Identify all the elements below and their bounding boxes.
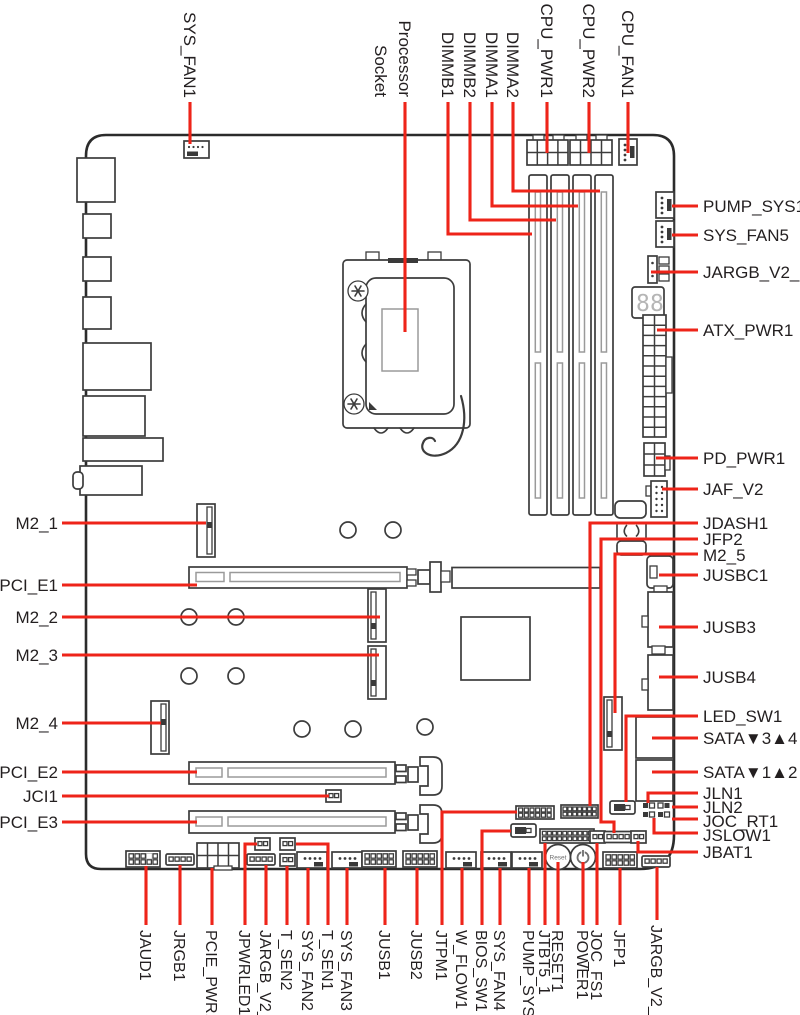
connector-cpu-pwr2 xyxy=(570,135,612,165)
label-bios-sw1: BIOS_SW1 xyxy=(472,930,489,1012)
header-t-sen1 xyxy=(280,838,295,850)
header-jtpm1 xyxy=(516,806,554,819)
label-m2-1: M2_1 xyxy=(15,514,58,533)
connector-sys-fan5 xyxy=(656,221,674,247)
labels-top: SYS_FAN1 Processor Socket DIMMB1 DIMMB2 … xyxy=(180,4,637,98)
header-jrgb1 xyxy=(166,854,194,865)
connector-sys-fan2 xyxy=(297,852,327,868)
label-dimma2: DIMMA2 xyxy=(503,32,522,98)
label-dimmb1: DIMMB1 xyxy=(438,32,457,98)
reset-button-label: Reset xyxy=(550,855,567,862)
label-jpwrled1: JPWRLED1 xyxy=(235,930,252,1015)
label-sys-fan2: SYS_FAN2 xyxy=(298,930,315,1011)
motherboard-diagram-page: 8 8 xyxy=(0,0,800,1015)
label-jaf-v2: JAF_V2 xyxy=(703,480,763,499)
debug-digit-1: 8 xyxy=(636,291,650,317)
label-pd-pwr1: PD_PWR1 xyxy=(703,449,785,468)
label-reset1: RESET1 xyxy=(548,930,565,992)
label-sata-1-2: SATA▼1▲2 xyxy=(703,763,797,782)
label-jusb4: JUSB4 xyxy=(703,668,756,687)
connector-sys-fan3 xyxy=(332,852,362,868)
label-jargb-v2-2: JARGB_V2_2 xyxy=(647,925,664,1015)
debug-led-display: 8 8 xyxy=(632,287,664,318)
header-jusb1 xyxy=(362,851,396,867)
header-jargb-v2-2 xyxy=(642,856,670,867)
audio-jack-bump xyxy=(73,472,83,489)
label-jbat1: JBAT1 xyxy=(703,843,753,862)
connector-pcie-pwr1 xyxy=(197,843,239,870)
dimm-slot-dimma1 xyxy=(573,175,591,515)
label-pcie-pwr1: PCIE_PWR1 xyxy=(202,930,219,1015)
connector-jargb-v2-3 xyxy=(648,256,669,283)
header-jargb-v2-1 xyxy=(247,854,275,865)
connector-jusbc1 xyxy=(647,556,673,588)
header-jfp1 xyxy=(603,852,637,868)
motherboard-diagram: 8 8 xyxy=(0,0,800,1015)
label-jargb-v2-3: JARGB_V2_3 xyxy=(703,263,800,282)
label-sys-fan3: SYS_FAN3 xyxy=(337,930,354,1011)
switch-bios-sw1 xyxy=(511,824,536,837)
label-jusb1: JUSB1 xyxy=(375,930,392,980)
switch-led-sw1 xyxy=(610,801,635,814)
small-tab-2 xyxy=(652,646,665,654)
label-socket: Socket xyxy=(371,45,390,97)
label-jtpm1: JTPM1 xyxy=(432,930,449,981)
chipset xyxy=(461,617,530,680)
label-cpu-fan1: CPU_FAN1 xyxy=(618,10,637,98)
label-atx-pwr1: ATX_PWR1 xyxy=(703,321,793,340)
label-jusb3: JUSB3 xyxy=(703,618,756,637)
label-m2-4: M2_4 xyxy=(15,714,58,733)
connector-sys-fan4 xyxy=(481,852,511,868)
slot-m2-4 xyxy=(151,701,169,754)
label-m2-5: M2_5 xyxy=(703,546,746,565)
dimm-slot-dimma2 xyxy=(595,175,613,515)
header-t-sen2 xyxy=(280,854,295,866)
label-pump-sys1: PUMP_SYS1 xyxy=(703,197,800,216)
dimm-slot-dimmb2 xyxy=(551,175,569,515)
label-processor: Processor xyxy=(395,20,414,97)
labels-left: M2_1 PCI_E1 M2_2 M2_3 M2_4 PCI_E2 JCI1 P… xyxy=(0,514,58,832)
component-below-dimm xyxy=(615,501,646,518)
connector-w-flow1 xyxy=(446,852,476,868)
label-dimmb2: DIMMB2 xyxy=(460,32,479,98)
label-jargb-v2-1: JARGB_V2_1 xyxy=(256,930,273,1015)
label-jrgb1: JRGB1 xyxy=(170,930,187,982)
labels-right: PUMP_SYS1 SYS_FAN5 JARGB_V2_3 ATX_PWR1 P… xyxy=(703,197,800,862)
label-pci-e3: PCI_E3 xyxy=(0,813,58,832)
label-jaud1: JAUD1 xyxy=(136,930,153,981)
label-m2-2: M2_2 xyxy=(15,608,58,627)
header-jtbt5-1 xyxy=(540,829,594,843)
label-pci-e2: PCI_E2 xyxy=(0,763,58,782)
label-cpu-pwr2: CPU_PWR2 xyxy=(579,4,598,98)
header-jusb2 xyxy=(403,851,437,867)
label-sys-fan4: SYS_FAN4 xyxy=(490,930,507,1011)
dimm-slot-dimmb1 xyxy=(529,175,547,515)
header-jaud1 xyxy=(126,851,160,867)
header-jfp2 xyxy=(604,832,632,843)
connector-sys-fan1 xyxy=(184,141,209,158)
label-dimma1: DIMMA1 xyxy=(482,32,501,98)
label-sata-3-4: SATA▼3▲4 xyxy=(703,729,797,748)
label-cpu-pwr1: CPU_PWR1 xyxy=(537,4,556,98)
label-jfp1: JFP1 xyxy=(610,930,627,967)
connector-pump-sys1 xyxy=(656,192,674,218)
label-jusbc1: JUSBC1 xyxy=(703,566,768,585)
header-jdash1 xyxy=(561,805,598,818)
slot-m2-1 xyxy=(197,504,215,557)
label-m2-3: M2_3 xyxy=(15,646,58,665)
header-jpwrled1 xyxy=(255,838,270,850)
label-pump-sys2: PUMP_SYS2 xyxy=(519,930,536,1015)
label-t-sen2: T_SEN2 xyxy=(277,930,294,991)
labels-bottom: JAUD1 JRGB1 PCIE_PWR1 JPWRLED1 JARGB_V2_… xyxy=(136,925,664,1015)
slot-m2-5 xyxy=(604,697,622,750)
label-jci1: JCI1 xyxy=(23,787,58,806)
label-sys-fan1: SYS_FAN1 xyxy=(180,12,199,98)
connector-pump-sys2 xyxy=(512,852,542,868)
connector-sata-1-2 xyxy=(636,760,673,801)
label-sys-fan5: SYS_FAN5 xyxy=(703,226,789,245)
label-led-sw1: LED_SW1 xyxy=(703,707,782,726)
label-t-sen1: T_SEN1 xyxy=(318,930,335,991)
header-joc-fs1 xyxy=(590,831,605,843)
label-jusb2: JUSB2 xyxy=(407,930,424,980)
debug-digit-2: 8 xyxy=(650,291,664,317)
label-pci-e1: PCI_E1 xyxy=(0,576,58,595)
label-w-flow1: W_FLOW1 xyxy=(452,930,469,1009)
label-joc-fs1: JOC_FS1 xyxy=(587,930,604,1000)
